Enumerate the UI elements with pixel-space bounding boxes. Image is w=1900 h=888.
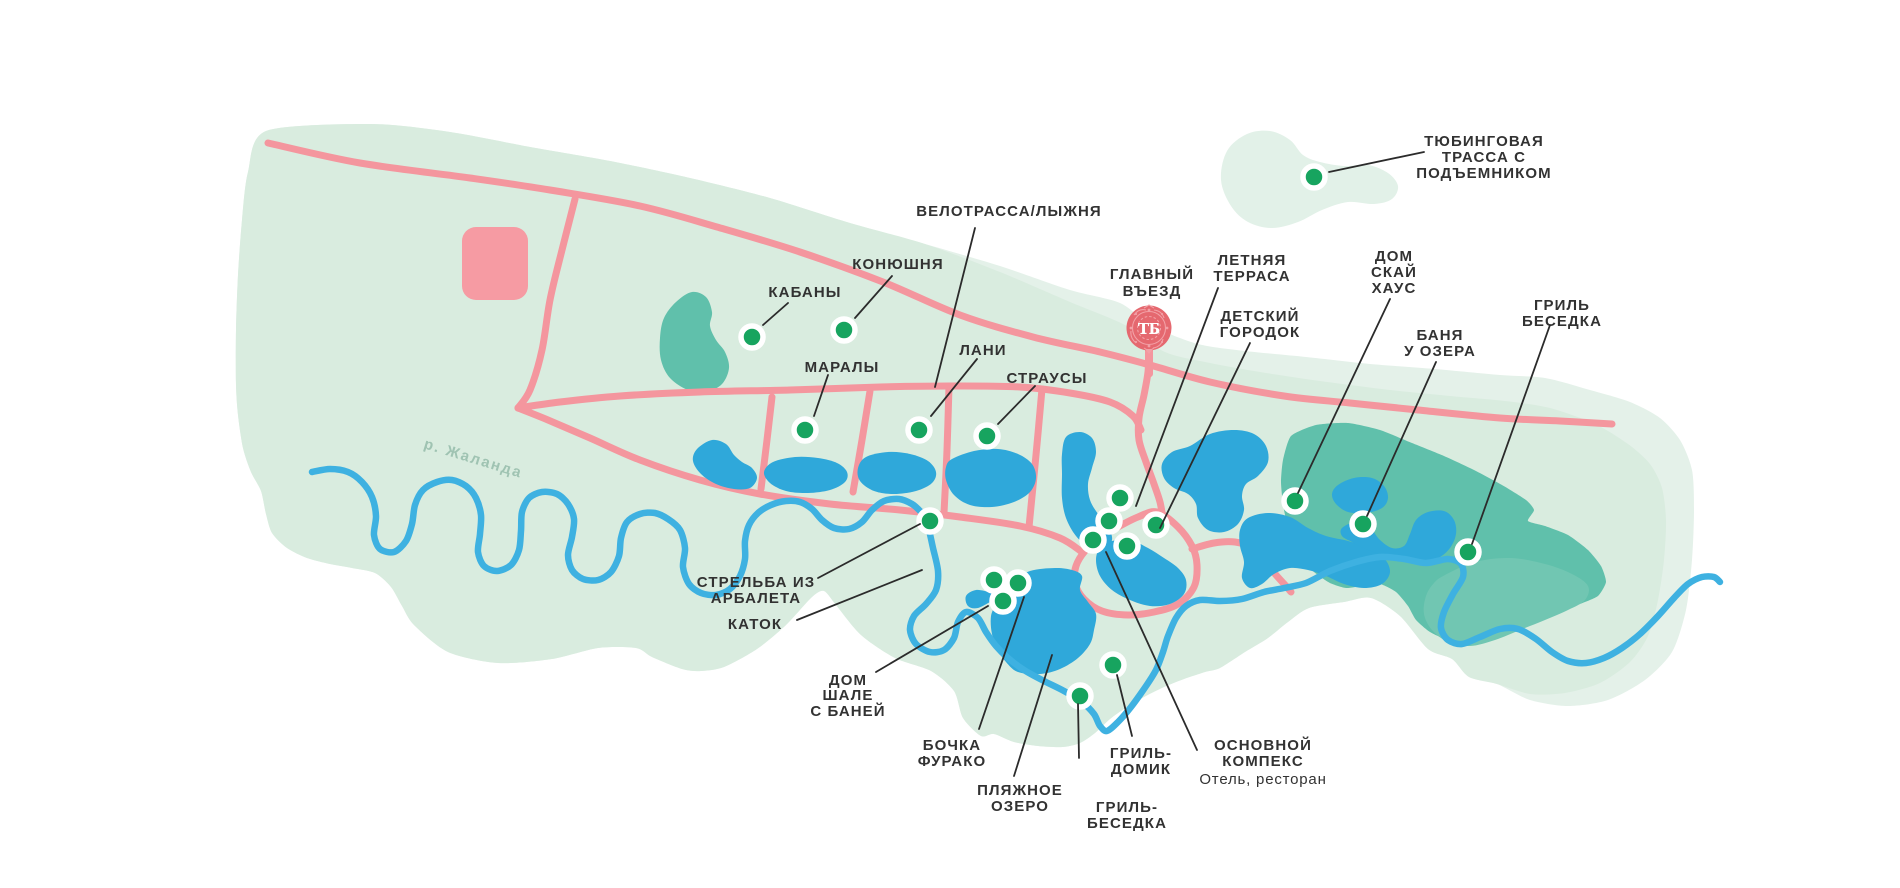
svg-text:КОМПЕКС: КОМПЕКС — [1222, 753, 1304, 770]
svg-text:ТЕРРАСА: ТЕРРАСА — [1213, 268, 1290, 285]
svg-text:КАТОК: КАТОК — [728, 616, 782, 633]
svg-text:КОНЮШНЯ: КОНЮШНЯ — [852, 256, 944, 273]
svg-text:С БАНЕЙ: С БАНЕЙ — [810, 702, 885, 720]
svg-text:ДОМИК: ДОМИК — [1111, 761, 1171, 778]
svg-text:ОЗЕРО: ОЗЕРО — [991, 798, 1049, 815]
svg-text:ФУРАКО: ФУРАКО — [918, 753, 987, 770]
svg-text:ТЮБИНГОВАЯ: ТЮБИНГОВАЯ — [1424, 133, 1544, 150]
svg-text:ХАУС: ХАУС — [1372, 280, 1417, 297]
svg-text:ОСНОВНОЙ: ОСНОВНОЙ — [1214, 736, 1312, 754]
svg-text:АРБАЛЕТА: АРБАЛЕТА — [711, 590, 801, 607]
svg-text:МАРАЛЫ: МАРАЛЫ — [805, 359, 880, 376]
svg-text:ДЕТСКИЙ: ДЕТСКИЙ — [1220, 307, 1299, 325]
svg-text:ДОМ: ДОМ — [1375, 248, 1413, 265]
svg-text:КАБАНЫ: КАБАНЫ — [768, 284, 841, 301]
svg-text:ТБ: ТБ — [1138, 319, 1161, 338]
svg-text:ПЛЯЖНОЕ: ПЛЯЖНОЕ — [977, 782, 1063, 799]
svg-text:БЕСЕДКА: БЕСЕДКА — [1087, 815, 1167, 832]
svg-text:БЕСЕДКА: БЕСЕДКА — [1522, 313, 1602, 330]
svg-text:БОЧКА: БОЧКА — [923, 737, 981, 754]
svg-text:ШАЛЕ: ШАЛЕ — [822, 687, 873, 704]
svg-text:СТРЕЛЬБА ИЗ: СТРЕЛЬБА ИЗ — [697, 574, 815, 591]
svg-text:ГРИЛЬ-: ГРИЛЬ- — [1110, 745, 1172, 762]
svg-text:ВЕЛОТРАССА/ЛЫЖНЯ: ВЕЛОТРАССА/ЛЫЖНЯ — [916, 203, 1102, 220]
svg-text:ВЪЕЗД: ВЪЕЗД — [1123, 283, 1182, 300]
svg-text:ПОДЪЕМНИКОМ: ПОДЪЕМНИКОМ — [1416, 165, 1552, 182]
svg-text:ГРИЛЬ-: ГРИЛЬ- — [1096, 799, 1158, 816]
svg-text:СКАЙ: СКАЙ — [1371, 263, 1417, 281]
svg-text:ЛЕТНЯЯ: ЛЕТНЯЯ — [1218, 252, 1287, 269]
svg-text:ГРИЛЬ: ГРИЛЬ — [1534, 297, 1590, 314]
svg-text:БАНЯ: БАНЯ — [1416, 327, 1463, 344]
svg-text:Отель, ресторан: Отель, ресторан — [1199, 771, 1326, 788]
svg-text:СТРАУСЫ: СТРАУСЫ — [1006, 370, 1087, 387]
svg-text:ГЛАВНЫЙ: ГЛАВНЫЙ — [1110, 265, 1194, 283]
svg-text:ЛАНИ: ЛАНИ — [959, 342, 1006, 359]
svg-text:ГОРОДОК: ГОРОДОК — [1220, 324, 1300, 341]
svg-text:У ОЗЕРА: У ОЗЕРА — [1404, 343, 1476, 360]
svg-text:ТРАССА С: ТРАССА С — [1442, 149, 1526, 166]
